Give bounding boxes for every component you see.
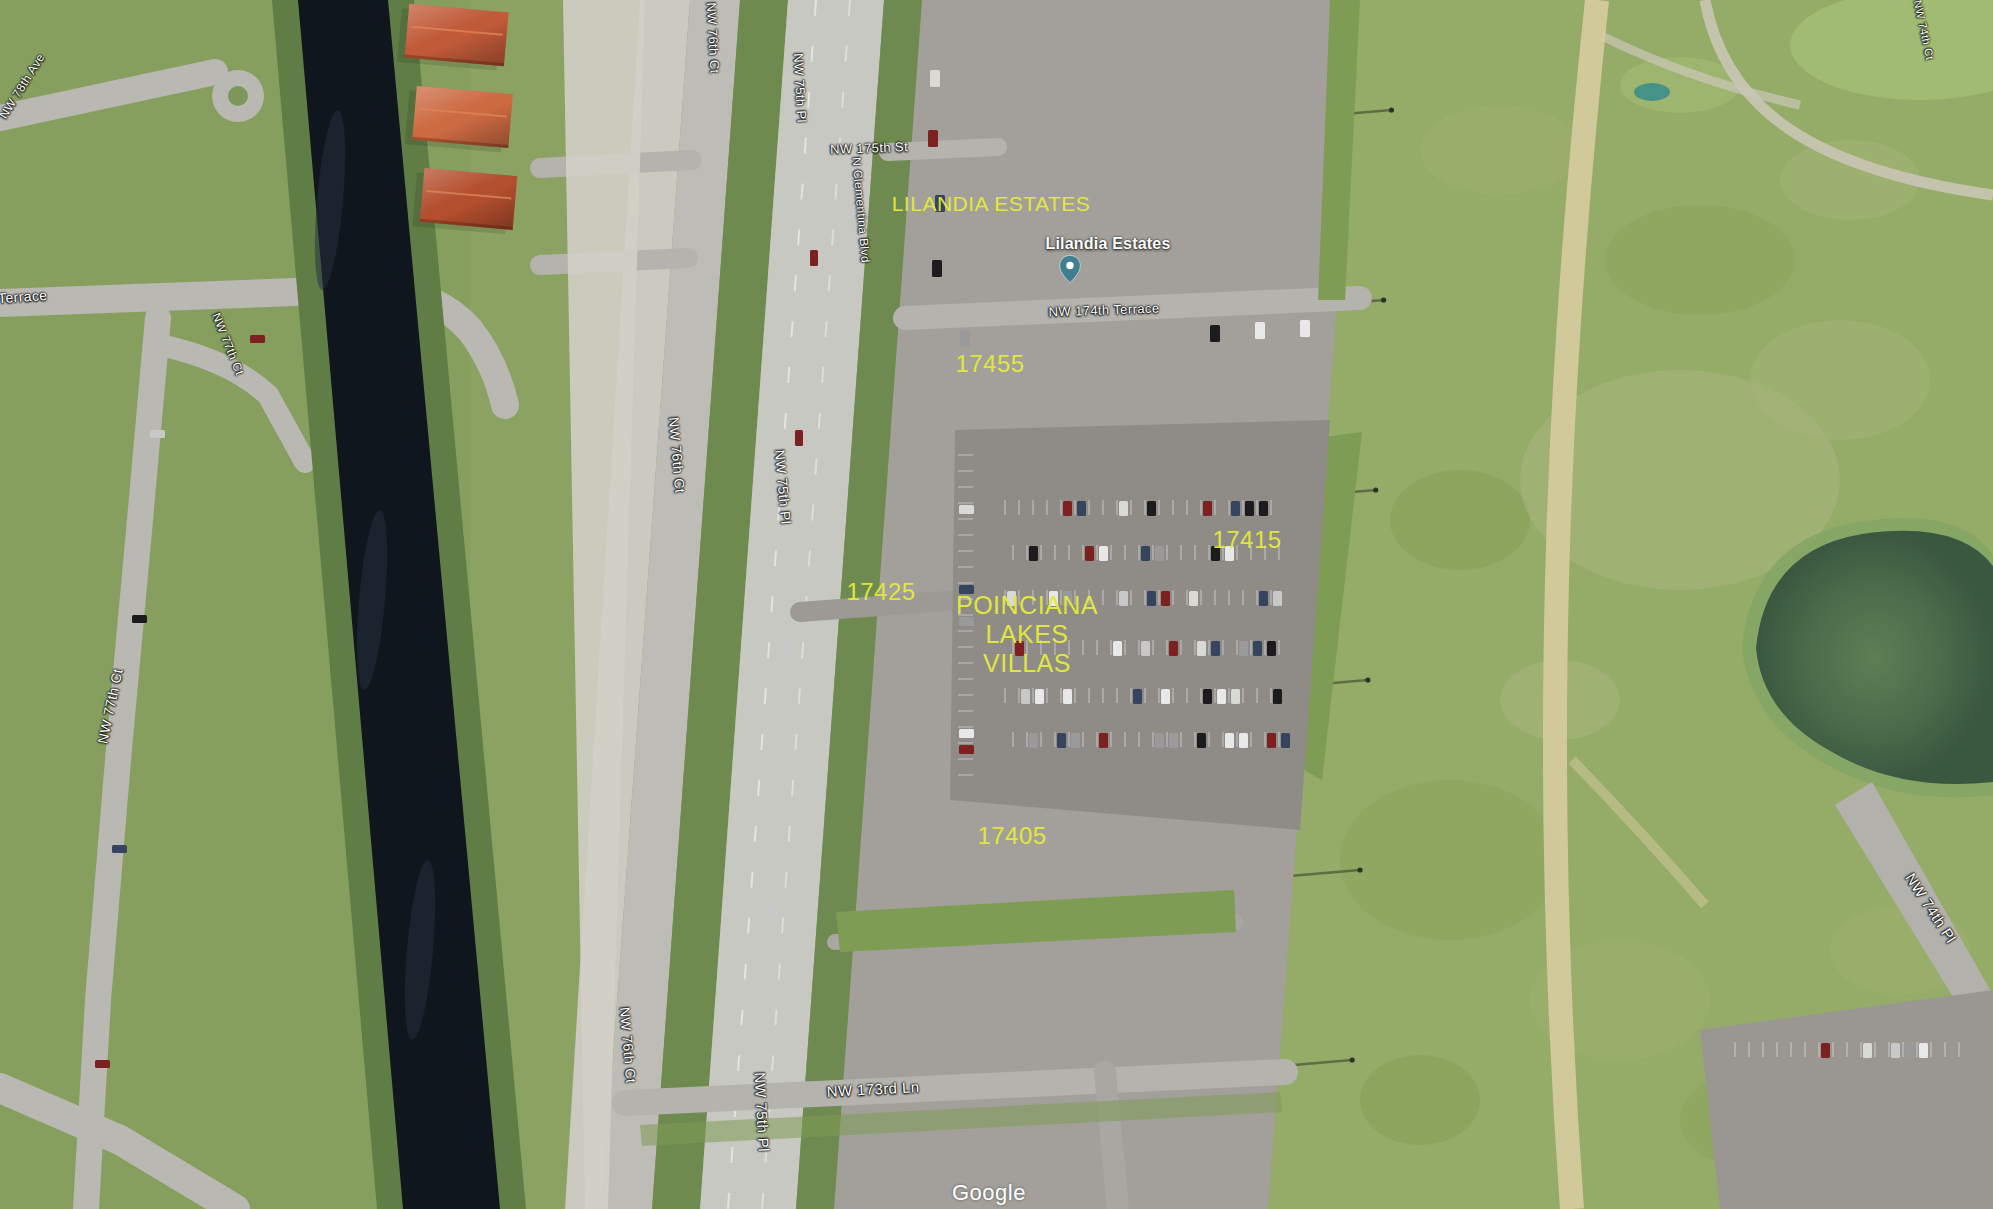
annotation-17405: 17405 bbox=[977, 822, 1046, 850]
annotation-line: VILLAS bbox=[956, 649, 1098, 678]
annotation-line: LAKES bbox=[956, 620, 1098, 649]
place-label-lilandia-estates[interactable]: Lilandia Estates bbox=[1045, 235, 1170, 253]
google-watermark: Google bbox=[952, 1180, 1026, 1206]
annotation-lilandia-estates: LILANDIA ESTATES bbox=[892, 192, 1091, 216]
place-pin-icon[interactable] bbox=[1059, 254, 1081, 284]
annotation-line: POINCIANA bbox=[956, 591, 1098, 620]
annotation-poinciana-lakes-villas: POINCIANA LAKES VILLAS bbox=[956, 591, 1098, 678]
satellite-map[interactable]: NW 78th Ave NW 174th Terrace NW 77th Ct … bbox=[0, 0, 1993, 1209]
street-label-nw-175th-st: NW 175th St bbox=[830, 139, 909, 157]
annotation-17425: 17425 bbox=[846, 578, 915, 606]
annotation-17415: 17415 bbox=[1212, 526, 1281, 554]
annotation-17455: 17455 bbox=[955, 350, 1024, 378]
